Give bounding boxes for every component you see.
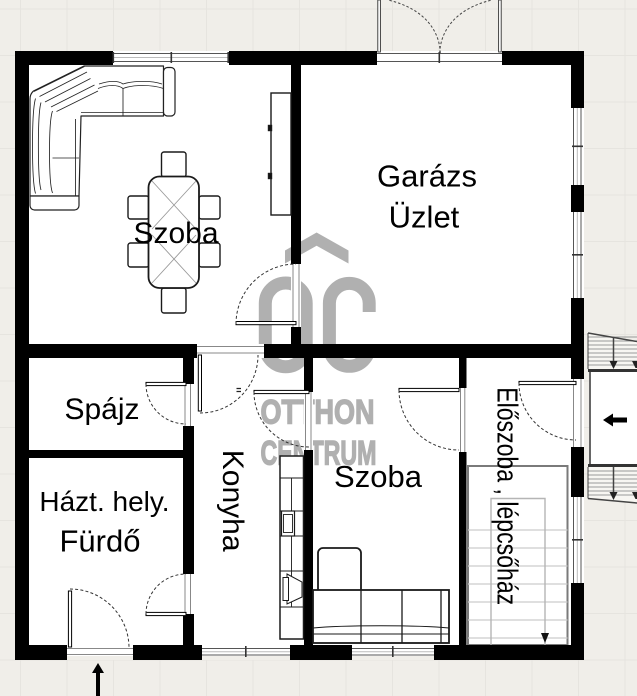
svg-text:Üzlet: Üzlet (389, 200, 460, 235)
svg-text:Fürdő: Fürdő (60, 524, 141, 559)
svg-text:Konyha: Konyha (216, 450, 249, 552)
svg-text:Szoba: Szoba (334, 459, 423, 494)
svg-text:OTTHON: OTTHON (261, 394, 375, 432)
svg-text:Garázs: Garázs (377, 159, 477, 194)
svg-text:Spájz: Spájz (64, 393, 139, 426)
svg-text:Előszoba , lépcsőház: Előszoba , lépcsőház (491, 387, 523, 605)
svg-text:Szoba: Szoba (133, 217, 218, 250)
svg-text:Házt. hely.: Házt. hely. (39, 486, 169, 517)
